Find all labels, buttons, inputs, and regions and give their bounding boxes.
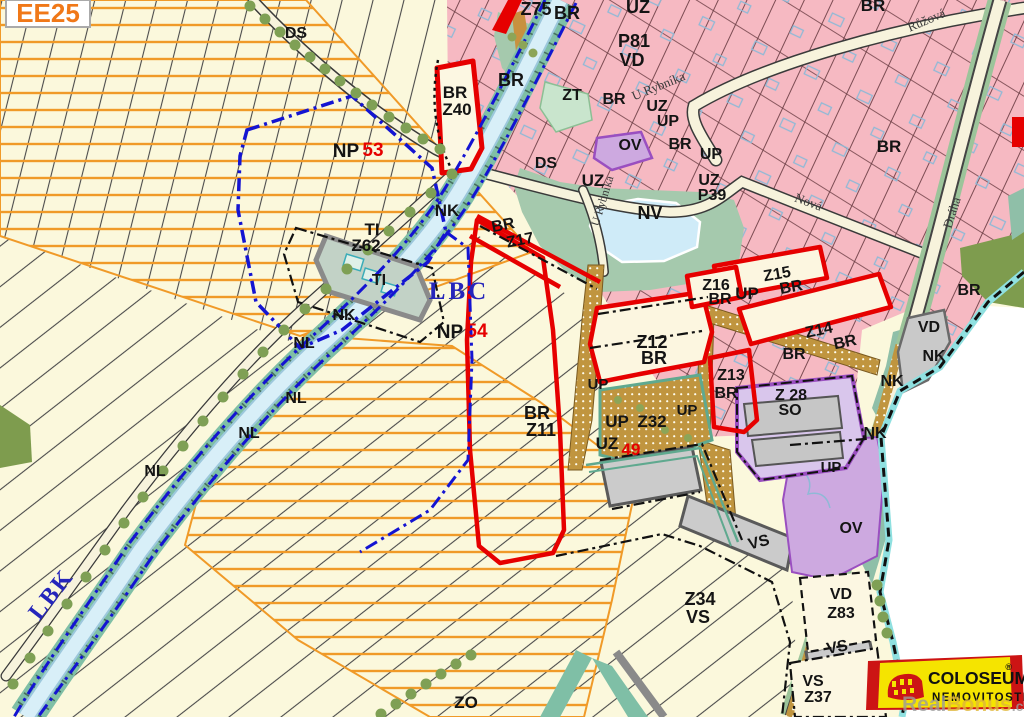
tree-dot bbox=[418, 134, 429, 145]
map-label-vs: VS bbox=[802, 673, 824, 690]
map-label-z40: Z40 bbox=[442, 100, 471, 119]
map-label-nk: NK bbox=[880, 373, 904, 390]
map-label-z83: Z83 bbox=[827, 605, 855, 622]
map-label-br: BR bbox=[877, 137, 902, 156]
corner-ref-label: EE25 bbox=[16, 0, 80, 28]
map-label-zo: ZO bbox=[454, 693, 478, 712]
map-label-49: 49 bbox=[622, 440, 641, 459]
tree-dot bbox=[238, 369, 249, 380]
map-label-z34: Z34 bbox=[684, 589, 715, 609]
map-label-nl: NL bbox=[144, 463, 166, 480]
map-label-p39: P39 bbox=[698, 187, 727, 204]
map-label-np: NP bbox=[333, 141, 360, 162]
map-label-up: UP bbox=[588, 376, 609, 393]
map-label-z37: Z37 bbox=[804, 689, 832, 706]
logo-registered-mark: ® bbox=[1005, 662, 1012, 672]
map-label-nl: NL bbox=[293, 335, 315, 352]
map-label-ds: DS bbox=[285, 25, 308, 42]
tree-dot bbox=[451, 659, 462, 670]
tree-dot bbox=[100, 545, 111, 556]
zoning-map: EE25 DSZ75BRUZP81VDU RybníkaZTBRUZUPBRUP… bbox=[0, 0, 1024, 717]
map-label-br: BR bbox=[861, 0, 886, 15]
map-label-ov: OV bbox=[839, 520, 862, 537]
tree-dot bbox=[198, 416, 209, 427]
tree-dot bbox=[519, 41, 528, 50]
tree-dot bbox=[305, 52, 316, 63]
tree-dot bbox=[8, 679, 19, 690]
map-label-z75: Z75 bbox=[520, 0, 551, 19]
tree-dot bbox=[391, 699, 402, 710]
map-label-up: UP bbox=[735, 284, 759, 303]
watermark-part2: Bonus bbox=[946, 693, 1011, 716]
map-label-z32: Z32 bbox=[637, 412, 666, 431]
map-label-nk: NK bbox=[435, 201, 460, 220]
map-label-up: UP bbox=[657, 113, 680, 130]
map-label-nl: NL bbox=[238, 425, 260, 442]
tree-dot bbox=[351, 88, 362, 99]
map-label-p81: P81 bbox=[618, 31, 650, 51]
tree-dot bbox=[435, 144, 446, 155]
map-label-br: BR bbox=[782, 346, 806, 363]
watermark-part3: .cz bbox=[1012, 698, 1024, 714]
tree-dot bbox=[882, 628, 893, 639]
tree-dot bbox=[342, 264, 353, 275]
tree-dot bbox=[81, 572, 92, 583]
map-label-z62: Z62 bbox=[351, 236, 380, 255]
tree-dot bbox=[245, 1, 256, 12]
tree-dot bbox=[367, 100, 378, 111]
map-label-np: NP bbox=[437, 322, 464, 343]
map-label-vd: VD bbox=[619, 50, 644, 70]
map-label-br: BR bbox=[641, 348, 667, 368]
tree-dot bbox=[875, 596, 886, 607]
tree-dot bbox=[384, 112, 395, 123]
map-label-nl: NL bbox=[285, 390, 307, 407]
tree-dot bbox=[119, 518, 130, 529]
map-label-nk: NK bbox=[922, 348, 946, 365]
tree-dot bbox=[426, 188, 437, 199]
map-label-ov: OV bbox=[618, 137, 641, 154]
map-label-br: BR bbox=[602, 91, 626, 108]
map-label-up: UP bbox=[605, 412, 629, 431]
tree-dot bbox=[878, 612, 889, 623]
tree-dot bbox=[406, 689, 417, 700]
map-label-br: BR bbox=[708, 291, 732, 308]
map-label-nk: NK bbox=[863, 425, 887, 442]
tree-dot bbox=[421, 679, 432, 690]
map-label-vd: VD bbox=[918, 319, 940, 336]
map-label-br: BR bbox=[554, 3, 580, 23]
tree-dot bbox=[320, 64, 331, 75]
tree-dot bbox=[872, 580, 883, 591]
map-label-vs: VS bbox=[686, 607, 710, 627]
map-label-lbc: LBC bbox=[429, 278, 489, 305]
tree-dot bbox=[436, 669, 447, 680]
tree-dot bbox=[258, 347, 269, 358]
tree-dot bbox=[260, 14, 271, 25]
map-label-54: 54 bbox=[466, 321, 488, 342]
map-label-up: UP bbox=[821, 459, 842, 476]
tree-dot bbox=[529, 49, 538, 58]
map-label-nk: NK bbox=[332, 307, 356, 324]
map-label-z11: Z11 bbox=[526, 420, 556, 440]
map-label-br: BR bbox=[498, 70, 524, 90]
map-label-ds: DS bbox=[535, 155, 558, 172]
map-label-uz: UZ bbox=[626, 0, 650, 17]
map-label-uz: UZ bbox=[596, 434, 619, 453]
tree-dot bbox=[279, 325, 290, 336]
tree-dot bbox=[300, 304, 311, 315]
tree-dot bbox=[25, 653, 36, 664]
zoning-map-canvas: EE25 DSZ75BRUZP81VDU RybníkaZTBRUZUPBRUP… bbox=[0, 0, 1024, 717]
map-ref-ee25: EE25 bbox=[6, 0, 90, 28]
map-label-z13: Z13 bbox=[717, 367, 745, 384]
tree-dot bbox=[466, 650, 477, 661]
map-label-nv: NV bbox=[637, 203, 662, 223]
map-label-ti: TI bbox=[372, 272, 386, 289]
tree-dot bbox=[275, 27, 286, 38]
tree-dot bbox=[405, 207, 416, 218]
tree-dot bbox=[178, 441, 189, 452]
map-label-br: BR bbox=[957, 282, 981, 299]
watermark-part1: Real bbox=[902, 693, 946, 716]
tree-dot bbox=[384, 226, 395, 237]
watermark-realbonus: RealBonus.cz bbox=[902, 693, 1024, 716]
tree-dot bbox=[138, 492, 149, 503]
map-label-zt: ZT bbox=[562, 87, 582, 104]
tree-dot bbox=[218, 392, 229, 403]
tree-dot bbox=[43, 626, 54, 637]
tree-dot bbox=[335, 76, 346, 87]
map-label-vd: VD bbox=[830, 586, 852, 603]
map-label-up: UP bbox=[677, 402, 698, 419]
map-label-up: UP bbox=[700, 146, 723, 163]
map-label-53: 53 bbox=[362, 140, 383, 161]
map-label-so: SO bbox=[778, 402, 801, 419]
map-label-br: BR bbox=[668, 136, 692, 153]
map-label-br: BR bbox=[714, 385, 738, 402]
tree-dot bbox=[321, 284, 332, 295]
tree-dot bbox=[508, 33, 517, 42]
red-zone-right-edge bbox=[1012, 117, 1024, 147]
tree-dot bbox=[401, 123, 412, 134]
tree-dot bbox=[447, 169, 458, 180]
